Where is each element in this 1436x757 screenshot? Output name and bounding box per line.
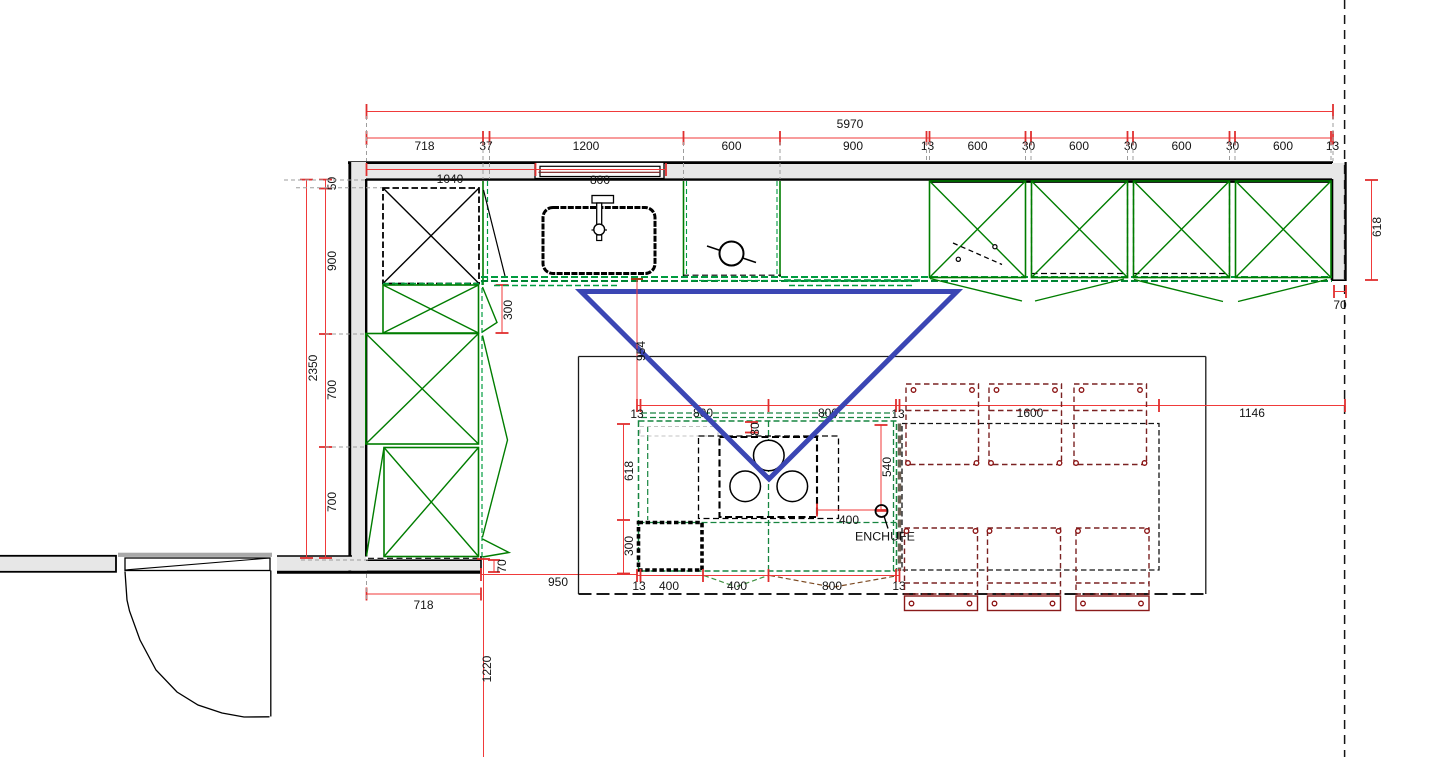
- svg-text:800: 800: [590, 173, 610, 187]
- svg-text:600: 600: [967, 139, 987, 153]
- svg-text:30: 30: [1226, 139, 1240, 153]
- svg-text:600: 600: [1171, 139, 1191, 153]
- svg-text:1040: 1040: [437, 172, 464, 186]
- svg-text:400: 400: [727, 579, 747, 593]
- svg-text:400: 400: [839, 513, 859, 527]
- svg-text:540: 540: [880, 457, 894, 477]
- svg-text:13: 13: [630, 407, 644, 421]
- svg-text:5970: 5970: [837, 117, 864, 131]
- svg-text:400: 400: [659, 579, 679, 593]
- svg-text:1600: 1600: [1017, 406, 1044, 420]
- svg-text:70: 70: [1333, 298, 1347, 312]
- svg-text:950: 950: [548, 575, 568, 589]
- svg-text:1146: 1146: [1239, 406, 1265, 420]
- svg-text:300: 300: [501, 300, 515, 320]
- svg-text:800: 800: [822, 579, 842, 593]
- svg-text:300: 300: [622, 536, 636, 556]
- svg-text:954: 954: [634, 341, 648, 361]
- svg-text:13: 13: [632, 579, 646, 593]
- svg-text:13: 13: [891, 407, 905, 421]
- svg-text:1220: 1220: [480, 655, 494, 682]
- svg-text:718: 718: [414, 139, 434, 153]
- svg-text:618: 618: [622, 461, 636, 481]
- svg-text:1200: 1200: [573, 139, 600, 153]
- svg-text:80: 80: [748, 422, 762, 436]
- svg-text:618: 618: [1370, 217, 1384, 237]
- svg-text:70: 70: [495, 559, 509, 573]
- svg-text:30: 30: [1022, 139, 1036, 153]
- svg-text:37: 37: [479, 139, 493, 153]
- svg-text:13: 13: [921, 139, 935, 153]
- svg-text:700: 700: [325, 492, 339, 512]
- svg-text:600: 600: [1273, 139, 1293, 153]
- svg-text:700: 700: [325, 380, 339, 400]
- svg-text:900: 900: [325, 251, 339, 271]
- svg-text:30: 30: [1124, 139, 1138, 153]
- svg-text:600: 600: [721, 139, 741, 153]
- svg-text:900: 900: [843, 139, 863, 153]
- svg-text:2350: 2350: [306, 354, 320, 381]
- svg-text:718: 718: [413, 598, 433, 612]
- svg-text:600: 600: [1069, 139, 1089, 153]
